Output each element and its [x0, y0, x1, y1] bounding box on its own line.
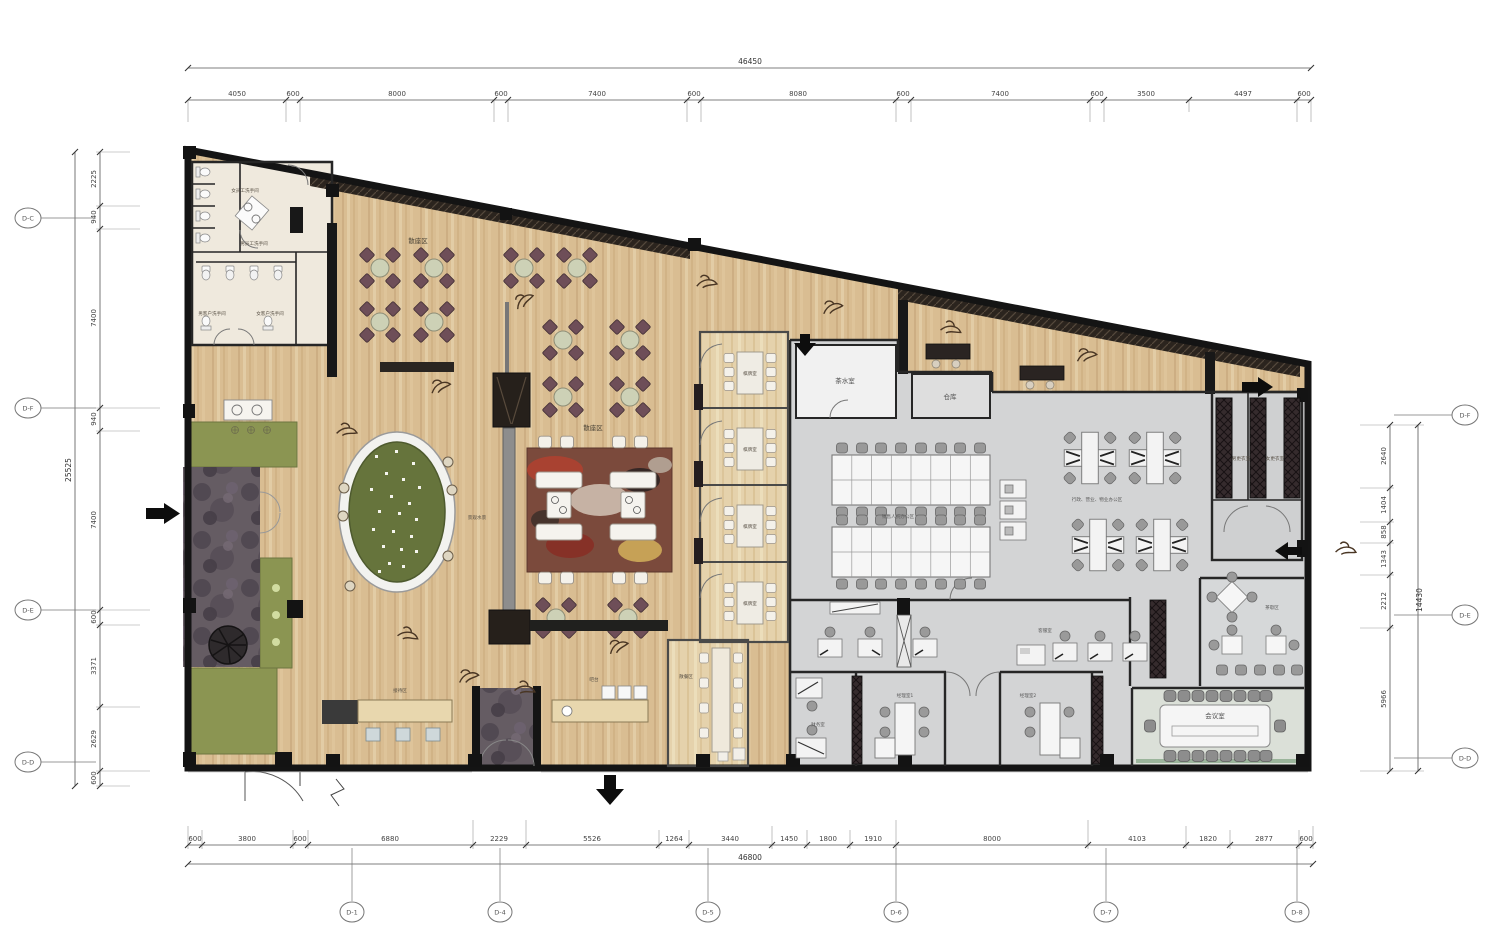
- svg-text:D-4: D-4: [494, 909, 506, 917]
- svg-text:1800: 1800: [819, 835, 837, 843]
- left-dimension: 25525 2225 940 7400 940 7400 600 3371 26…: [64, 149, 160, 789]
- reception-label: 接待区: [393, 687, 407, 694]
- svg-text:D-D: D-D: [22, 759, 34, 767]
- sales-office-label: 销售人员办公区: [882, 513, 915, 520]
- dim-top-overall: 46450: [738, 57, 762, 66]
- svg-text:600: 600: [293, 835, 306, 843]
- svg-text:8080: 8080: [789, 90, 807, 98]
- svg-text:6880: 6880: [381, 835, 399, 843]
- svg-text:5526: 5526: [583, 835, 601, 843]
- svg-text:D-E: D-E: [1459, 612, 1470, 620]
- svg-text:4497: 4497: [1234, 90, 1252, 98]
- svg-text:2212: 2212: [1380, 592, 1388, 610]
- female-locker-label: 女更衣室: [1266, 455, 1285, 462]
- dim-left-overall: 25525: [64, 458, 73, 482]
- svg-text:2629: 2629: [90, 730, 98, 748]
- manager2-label: 经理室2: [1020, 692, 1037, 699]
- private-room-label-2: 棋牌室: [743, 446, 757, 453]
- svg-text:D-E: D-E: [22, 607, 33, 615]
- customer-service-label: 客服室: [1038, 627, 1052, 634]
- tea-break-label: 茶歇区: [1265, 604, 1279, 611]
- private-room-label-1: 棋牌室: [743, 370, 757, 377]
- finance-label: 财务室: [811, 721, 825, 728]
- svg-text:940: 940: [90, 210, 98, 223]
- svg-text:D-7: D-7: [1100, 909, 1112, 917]
- svg-text:4103: 4103: [1128, 835, 1146, 843]
- spiral-stair-feature: [209, 626, 247, 664]
- bottom-dimension: 46800 600 3800 600 6880 2229 5526 1264 3…: [185, 820, 1316, 867]
- svg-text:1450: 1450: [780, 835, 798, 843]
- svg-text:D-F: D-F: [22, 405, 33, 413]
- casual-dining-label: 散餐区: [679, 673, 693, 680]
- svg-text:7400: 7400: [991, 90, 1009, 98]
- svg-text:8000: 8000: [983, 835, 1001, 843]
- dim-right-overall: 14430: [1415, 588, 1424, 612]
- svg-text:1264: 1264: [665, 835, 683, 843]
- svg-text:D-6: D-6: [890, 909, 902, 917]
- svg-text:D-5: D-5: [702, 909, 714, 917]
- right-dimension: 14430 2640 1404 858 1343 2212 5966: [1360, 422, 1424, 774]
- svg-text:600: 600: [687, 90, 700, 98]
- grid-bubbles-left: D-C D-F D-E D-D: [15, 208, 96, 772]
- svg-text:600: 600: [188, 835, 201, 843]
- meeting-label: 会议室: [1205, 711, 1225, 720]
- svg-text:600: 600: [494, 90, 507, 98]
- svg-text:2225: 2225: [90, 170, 98, 188]
- svg-text:2877: 2877: [1255, 835, 1273, 843]
- svg-text:3500: 3500: [1137, 90, 1155, 98]
- private-room-label-4: 棋牌室: [743, 600, 757, 607]
- svg-text:600: 600: [1299, 835, 1312, 843]
- male-guest-wc-label: 男客户洗手间: [198, 310, 226, 317]
- svg-text:940: 940: [90, 412, 98, 425]
- svg-text:D-C: D-C: [22, 215, 34, 223]
- storage-label: 仓库: [944, 392, 958, 401]
- svg-text:D-F: D-F: [1459, 412, 1470, 420]
- locker-rooms: [1216, 398, 1300, 498]
- svg-text:8000: 8000: [388, 90, 406, 98]
- seating-area-label-2: 散座区: [583, 423, 603, 432]
- svg-text:4050: 4050: [228, 90, 246, 98]
- svg-text:7400: 7400: [90, 309, 98, 327]
- female-guest-wc-label: 女客户洗手间: [256, 310, 284, 317]
- exterior-door-swing: [188, 772, 1308, 806]
- svg-text:5966: 5966: [1380, 690, 1388, 708]
- bar-label: 吧台: [589, 676, 599, 683]
- svg-text:1404: 1404: [1380, 496, 1388, 514]
- svg-text:858: 858: [1380, 525, 1388, 538]
- svg-text:3440: 3440: [721, 835, 739, 843]
- booth-lounge: [527, 436, 672, 584]
- floor-plan-canvas: 棋牌室 棋牌室 棋牌室 棋牌室: [0, 0, 1500, 940]
- svg-text:600: 600: [896, 90, 909, 98]
- svg-text:7400: 7400: [588, 90, 606, 98]
- entrance-arrow-left: [146, 503, 180, 524]
- svg-text:600: 600: [90, 771, 98, 784]
- svg-text:D-1: D-1: [346, 909, 358, 917]
- svg-text:1910: 1910: [864, 835, 882, 843]
- male-locker-label: 男更衣室: [1232, 455, 1251, 462]
- svg-text:1820: 1820: [1199, 835, 1217, 843]
- exit-arrow-bottom: [596, 775, 624, 805]
- manager1-label: 经理室1: [897, 692, 914, 699]
- floor-plan: 棋牌室 棋牌室 棋牌室 棋牌室: [0, 0, 1500, 940]
- svg-text:600: 600: [1090, 90, 1103, 98]
- female-staff-wc-label: 女员工洗手间: [231, 187, 259, 194]
- male-staff-wc-label: 男员工洗手间: [240, 240, 268, 247]
- water-feature-label: 景观水景: [468, 514, 487, 521]
- svg-text:2640: 2640: [1380, 447, 1388, 465]
- meeting-room: [1145, 691, 1286, 762]
- tea-room-label: 茶水室: [835, 376, 855, 385]
- svg-text:D-D: D-D: [1459, 755, 1471, 763]
- admin-office-label: 行政、营业、物业办公区: [1072, 496, 1123, 503]
- seating-area-label-1: 散座区: [408, 236, 428, 245]
- dim-bottom-overall: 46800: [738, 853, 762, 862]
- private-room-label-3: 棋牌室: [743, 523, 757, 530]
- svg-text:3800: 3800: [238, 835, 256, 843]
- pond-water-feature: [338, 432, 457, 592]
- svg-text:D-8: D-8: [1291, 909, 1303, 917]
- svg-text:600: 600: [286, 90, 299, 98]
- grid-bubbles-bottom: D-1 D-4 D-5 D-6 D-7 D-8: [340, 848, 1309, 922]
- svg-text:600: 600: [1297, 90, 1310, 98]
- svg-text:2229: 2229: [490, 835, 508, 843]
- svg-text:7400: 7400: [90, 511, 98, 529]
- svg-text:1343: 1343: [1380, 550, 1388, 568]
- svg-text:3371: 3371: [90, 657, 98, 675]
- svg-text:600: 600: [90, 610, 98, 623]
- top-dimension: 46450 4050 600 8000 600 7400 600 8080 60…: [185, 57, 1314, 122]
- filing-cabinets: [1000, 480, 1026, 540]
- grid-bubbles-right: D-F D-E D-D: [1394, 405, 1478, 768]
